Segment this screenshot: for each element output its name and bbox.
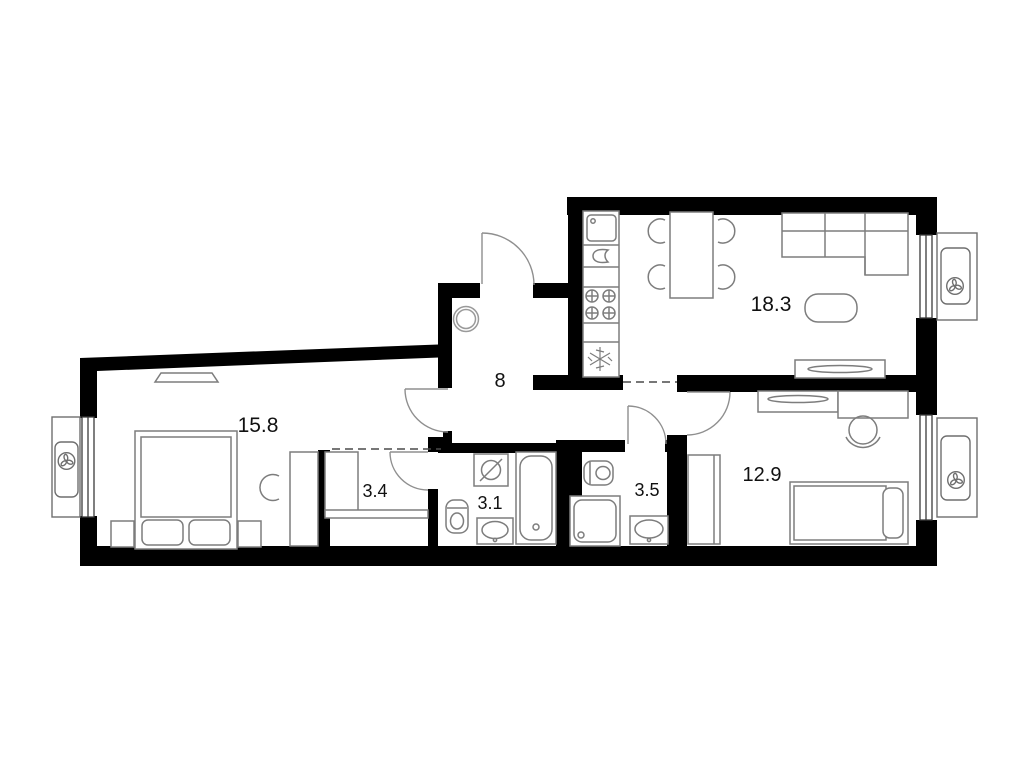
- fan-icon: [947, 278, 964, 295]
- label-wardrobe-closet: 3.4: [362, 481, 387, 501]
- floor-plan-page: 18.3 15.8 12.9 8 3.4 3.1 3.5: [0, 0, 1024, 768]
- wall-shower-right: [667, 435, 687, 546]
- nightstand-left: [111, 521, 134, 547]
- double-bed: [135, 431, 237, 549]
- label-shower-room: 3.5: [634, 480, 659, 500]
- window-right-living: [920, 235, 932, 318]
- shower-room-door: [628, 406, 666, 444]
- cutting-board-icon: [593, 249, 608, 262]
- floor-plan-canvas: 18.3 15.8 12.9 8 3.4 3.1 3.5: [0, 0, 1024, 768]
- wall-kitchen-left: [568, 197, 583, 390]
- tv-icon: [808, 366, 872, 373]
- dresser-bedroom1: [290, 452, 318, 546]
- label-hallway: 8: [494, 370, 505, 392]
- label-bedroom-second: 12.9: [743, 464, 782, 486]
- window-right-bedroom2: [920, 415, 932, 520]
- ac-unit-left: [52, 417, 80, 517]
- bathtub: [516, 452, 556, 544]
- coffee-table: [805, 294, 857, 322]
- wall-shelf: [155, 373, 218, 382]
- wall-left-above-window: [80, 358, 97, 418]
- shower-tray: [570, 496, 620, 546]
- bedroom1-door: [405, 389, 448, 432]
- pillow: [189, 520, 230, 545]
- zone-boundaries: [332, 382, 677, 449]
- ac-unit-right-bottom: [937, 418, 977, 517]
- wall-top-left-slanted: [80, 344, 452, 371]
- kitchen-counter-column: [583, 211, 619, 377]
- label-bedroom-main: 15.8: [238, 414, 279, 437]
- nightstand-right: [238, 521, 261, 547]
- label-kitchen-living: 18.3: [751, 293, 792, 316]
- corner-sofa: [782, 213, 908, 275]
- dining-table: [670, 212, 713, 298]
- ac-unit-right-top: [937, 233, 977, 320]
- toilet-bathroom: [446, 500, 468, 533]
- chair-bedroom1: [260, 475, 279, 501]
- label-bathroom: 3.1: [477, 493, 502, 513]
- kitchen-sink-icon: [587, 215, 616, 241]
- window-left-bedroom1: [82, 417, 94, 517]
- wall-right-lower: [916, 520, 937, 566]
- fan-icon: [58, 453, 75, 470]
- tv-stand-bedroom2: [758, 391, 838, 412]
- sink-bathroom: [477, 518, 513, 544]
- sink-shower-room: [630, 516, 668, 544]
- single-bed: [790, 482, 908, 544]
- wall-bathroom-left: [428, 489, 438, 546]
- fan-icon: [948, 472, 965, 489]
- toilet-shower-room: [584, 461, 613, 485]
- wall-right-upper: [916, 197, 937, 235]
- wall-hallway-left: [438, 283, 452, 388]
- wardrobe-bedroom2: [688, 455, 720, 544]
- washing-machine-icon: [474, 454, 508, 486]
- pillow: [883, 488, 903, 538]
- desk-chair: [846, 416, 880, 448]
- bathroom-door: [390, 452, 428, 490]
- tv-stand-living: [795, 360, 885, 378]
- wall-shower-top-left: [556, 440, 625, 452]
- desk-bedroom2: [838, 391, 908, 418]
- wall-entry-left: [438, 283, 480, 298]
- pillow: [142, 520, 183, 545]
- wall-right-middle: [916, 318, 937, 415]
- bedroom2-door: [687, 392, 730, 435]
- tv-icon: [768, 396, 828, 403]
- hallway-mirror: [454, 307, 479, 332]
- wall-bedroom2-door-block: [677, 375, 687, 392]
- entrance-door: [482, 233, 534, 285]
